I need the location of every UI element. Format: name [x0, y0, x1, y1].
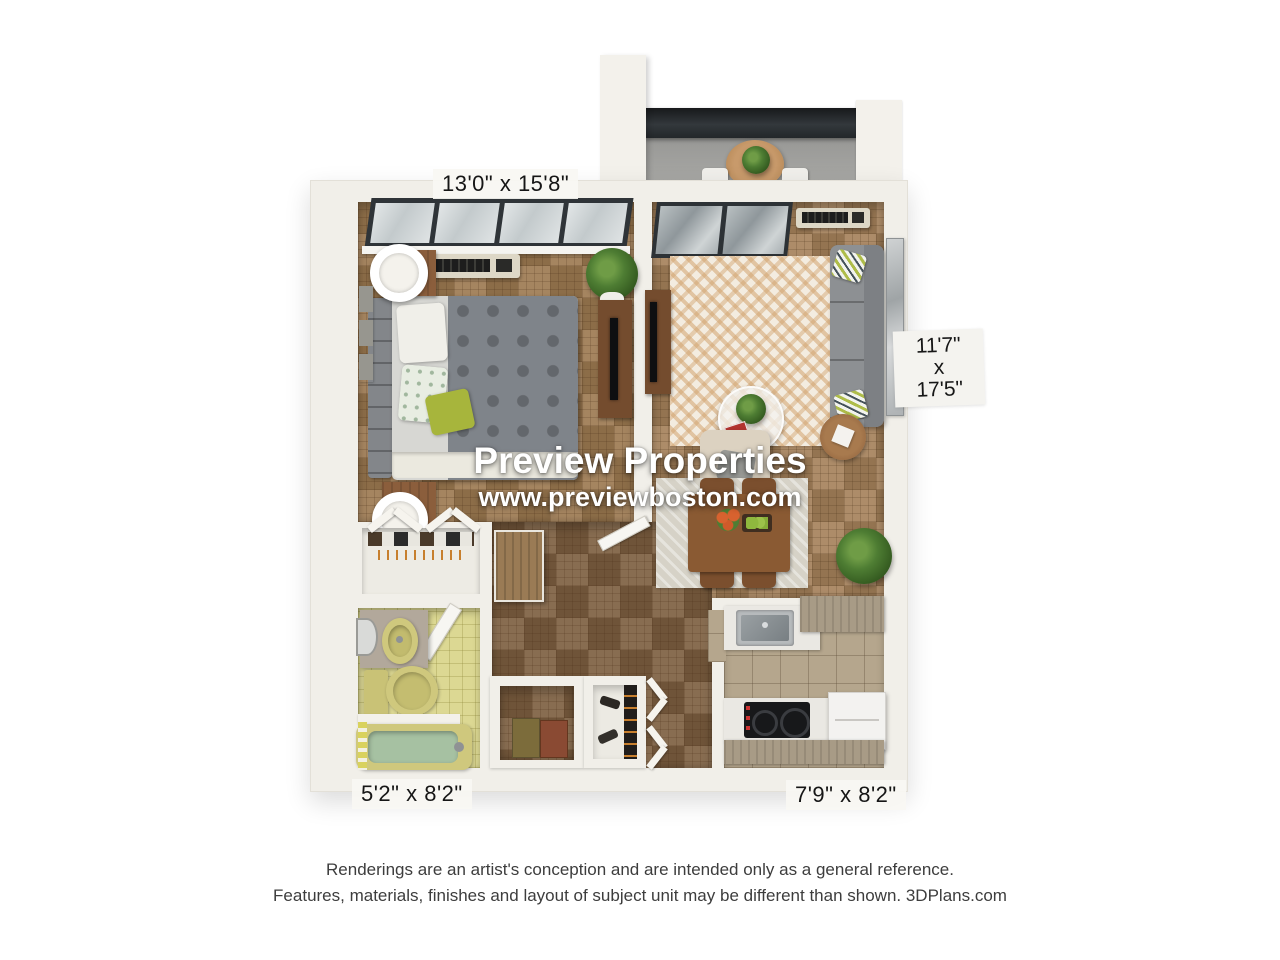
lamp-top	[370, 244, 428, 302]
toilet-bowl	[386, 666, 438, 716]
closet-shelf-items	[368, 532, 474, 546]
bathtub	[356, 724, 472, 770]
toilet-seat	[393, 672, 431, 710]
kitchen-faucet	[762, 622, 768, 628]
window-pane	[499, 203, 564, 243]
storage-closet	[490, 676, 584, 768]
bathroom-sink	[382, 618, 418, 664]
balcony-plant	[742, 146, 770, 174]
ac-grille	[802, 212, 848, 223]
bedroom-dimension-label: 13'0" x 15'8"	[433, 169, 578, 199]
closet-hanging-clothes	[378, 550, 466, 560]
shoe-closet	[584, 676, 646, 768]
storage-box	[512, 718, 540, 758]
coffee-table-plant	[736, 394, 766, 424]
dining-plant	[836, 528, 892, 584]
tub-faucet	[454, 742, 464, 752]
bedroom-tv	[610, 318, 618, 400]
living-dim-line3: 17'5"	[902, 378, 977, 403]
window-pane	[370, 203, 435, 243]
sofa-backrest	[864, 245, 884, 427]
fridge-handle	[835, 719, 879, 721]
balcony-sliding-door	[651, 202, 793, 258]
entry-door-leaf	[494, 530, 544, 602]
dining-fruit-tray	[742, 514, 772, 532]
living-dim-line1: 11'7"	[901, 334, 976, 359]
sliding-door-pane	[722, 206, 789, 254]
sliding-door-pane	[655, 206, 722, 254]
kitchen-lower-cabinets	[724, 740, 884, 764]
toilet-tank	[364, 670, 388, 716]
stove-knobs	[746, 706, 750, 734]
bath-towels	[358, 722, 367, 770]
window-pane	[434, 203, 499, 243]
kitchen-upper-cabinets	[800, 596, 884, 632]
sink-bowl	[741, 615, 789, 641]
living-tv	[650, 302, 657, 382]
cooktop	[744, 702, 810, 738]
ac-grille	[428, 259, 490, 272]
bathtub-water	[368, 731, 458, 763]
bathroom-half-wall	[358, 714, 460, 724]
disclaimer-line1: Renderings are an artist's conception an…	[0, 860, 1280, 880]
sink-faucet	[396, 636, 403, 643]
ac-panel	[852, 212, 864, 223]
watermark-brand: Preview Properties	[0, 440, 1280, 482]
ac-panel	[496, 259, 512, 272]
burner	[752, 710, 778, 736]
bathroom-mirror	[356, 618, 378, 656]
disclaimer-line2: Features, materials, finishes and layout…	[0, 886, 1280, 906]
bedroom-window	[364, 198, 633, 248]
burner	[780, 708, 810, 738]
living-room-dimension-label: 11'7" x 17'5"	[893, 328, 986, 407]
watermark-website: www.previewboston.com	[0, 482, 1280, 513]
window-pane	[563, 203, 628, 243]
balcony-right-wall	[856, 100, 902, 190]
kitchen-dimension-label: 7'9" x 8'2"	[786, 780, 906, 810]
floor-plan-page: 13'0" x 15'8" 11'7" x 17'5" 5'2" x 8'2" …	[0, 0, 1280, 960]
storage-box	[540, 720, 568, 758]
exterior-wall-stub	[600, 55, 646, 190]
bed-pillow-white	[396, 302, 448, 363]
shoe-shelf	[624, 685, 637, 759]
living-ac-unit	[796, 208, 870, 228]
living-dim-line2: x	[902, 356, 977, 381]
kitchen-stove-counter	[724, 698, 828, 742]
fruit	[746, 517, 768, 529]
wall-frames	[359, 286, 373, 382]
balcony-railing	[645, 108, 858, 138]
living-tv-console	[645, 290, 671, 394]
kitchen-sink	[736, 610, 794, 646]
bathroom-dimension-label: 5'2" x 8'2"	[352, 779, 472, 809]
